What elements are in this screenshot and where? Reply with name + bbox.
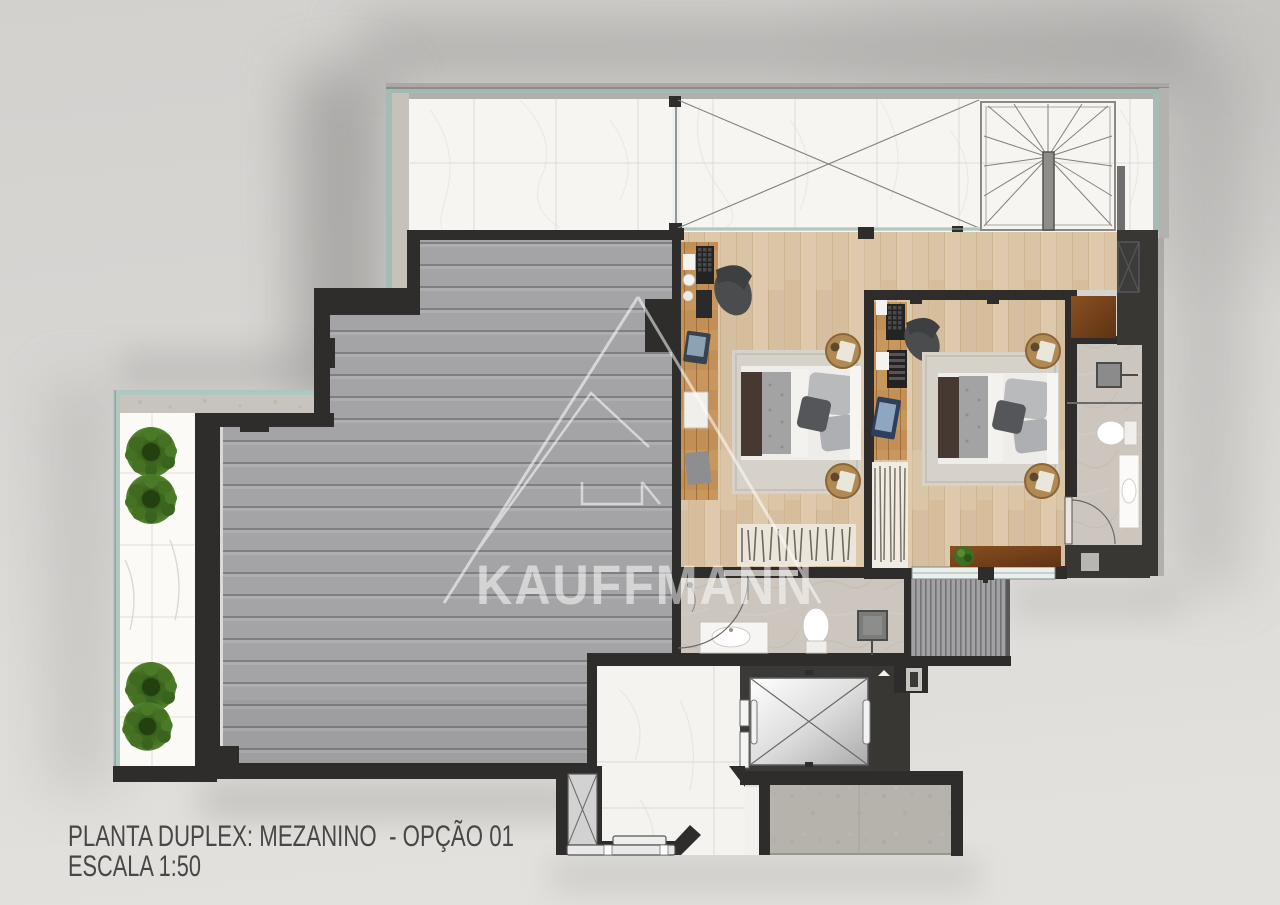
svg-text:KAUFFMANN: KAUFFMANN [476,553,814,616]
svg-text:PLANTA DUPLEX: MEZANINO - OPÇ: PLANTA DUPLEX: MEZANINO - OPÇÃO 01 [68,819,514,853]
svg-text:ESCALA 1:50: ESCALA 1:50 [68,850,201,883]
